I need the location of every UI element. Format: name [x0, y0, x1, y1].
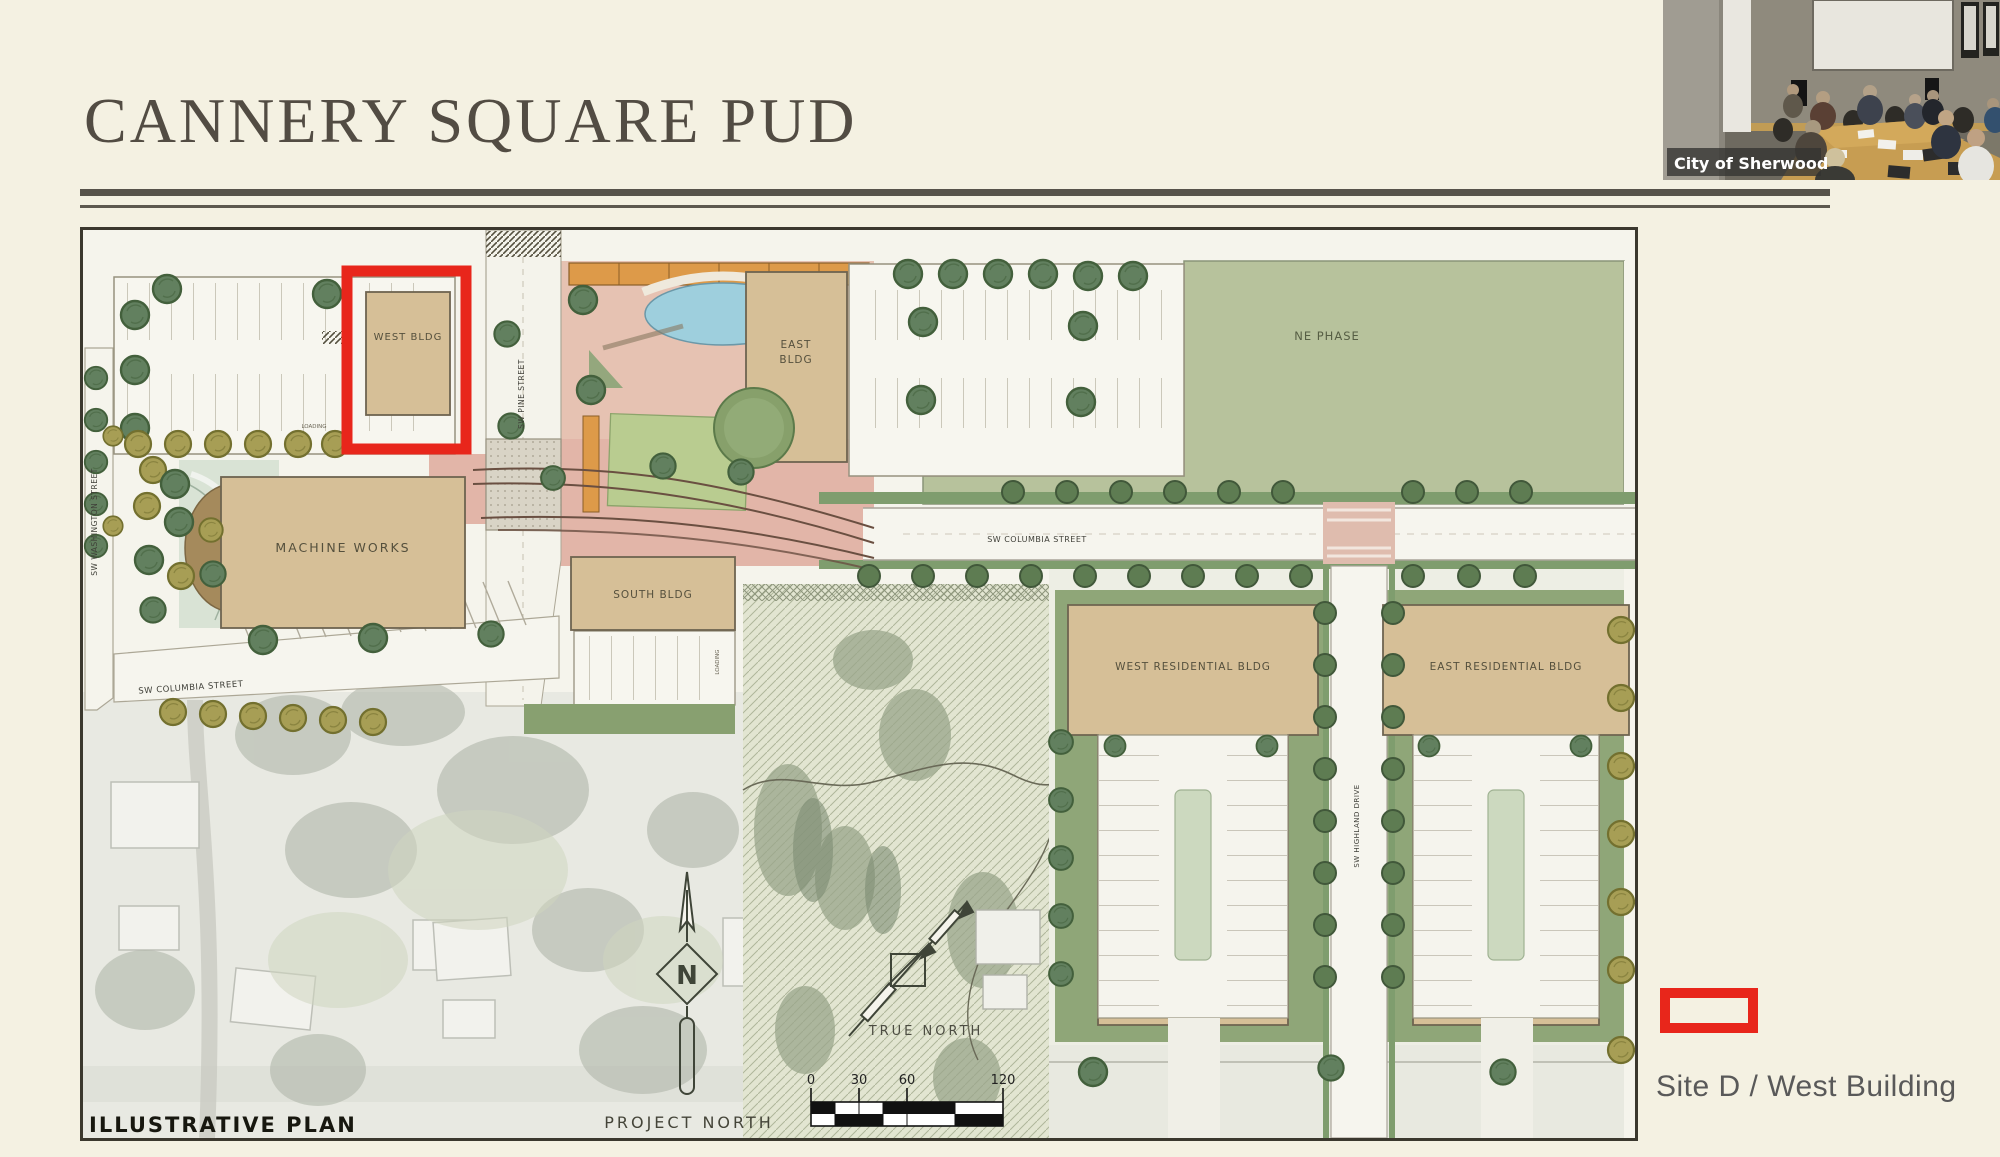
- sw-washington-label: SW WASHINGTON STREET: [90, 468, 99, 576]
- green-band: [524, 704, 735, 734]
- loading-west-label: LOADING: [301, 424, 326, 430]
- sw-pine-label: SW PINE STREET: [517, 359, 526, 429]
- site-plan: N 0 30 60 120: [80, 227, 1638, 1141]
- south-bldg-label: SOUTH BLDG: [613, 589, 693, 601]
- scale-tick-0: 0: [807, 1073, 815, 1088]
- ne-parking-lot: [849, 264, 1184, 476]
- legend-swatch-red: [1660, 988, 1758, 1033]
- back-whiteboard: [1813, 0, 1953, 70]
- sw-highland-label: SW HIGHLAND DRIVE: [1353, 784, 1361, 867]
- title-rule-bottom: [80, 205, 1830, 208]
- webcam-label: City of Sherwood: [1674, 154, 1828, 173]
- sw-columbia-right-label: SW COLUMBIA STREET: [987, 535, 1087, 544]
- site-plan-drawing: N 0 30 60 120: [83, 230, 1635, 1138]
- compass-n-letter: N: [676, 961, 698, 991]
- west-bldg-label: WEST BLDG: [374, 332, 443, 343]
- page-title: CANNERY SQUARE PUD: [84, 84, 858, 158]
- left-whiteboard: [1723, 0, 1751, 132]
- west-residential-label: WEST RESIDENTIAL BLDG: [1115, 661, 1271, 673]
- east-residential-label: EAST RESIDENTIAL BLDG: [1430, 661, 1583, 673]
- slide: CANNERY SQUARE PUD: [0, 0, 2000, 1157]
- true-north-label: TRUE NORTH: [868, 1024, 984, 1039]
- illustrative-plan-label: ILLUSTRATIVE PLAN: [89, 1113, 357, 1137]
- webcam-scene: City of Sherwood: [1663, 0, 2000, 180]
- machine-works-label: MACHINE WORKS: [275, 540, 410, 555]
- project-north-label: PROJECT NORTH: [604, 1113, 774, 1132]
- plaza-bench: [583, 416, 599, 512]
- west-building: [366, 292, 450, 415]
- legend-label: Site D / West Building: [1656, 1070, 1957, 1104]
- scale-tick-120: 120: [991, 1073, 1016, 1088]
- ne-phase-label: NE PHASE: [1294, 329, 1360, 343]
- webcam-feed: City of Sherwood: [1663, 0, 2000, 180]
- scale-tick-60: 60: [899, 1073, 916, 1088]
- scale-tick-30: 30: [851, 1073, 868, 1088]
- natural-preserve-area: [743, 584, 1063, 1138]
- loading-south-label: LOADING: [715, 649, 721, 674]
- east-bldg-label-2: BLDG: [779, 354, 812, 366]
- title-rule-top: [80, 189, 1830, 196]
- east-bldg-label-1: EAST: [781, 339, 812, 351]
